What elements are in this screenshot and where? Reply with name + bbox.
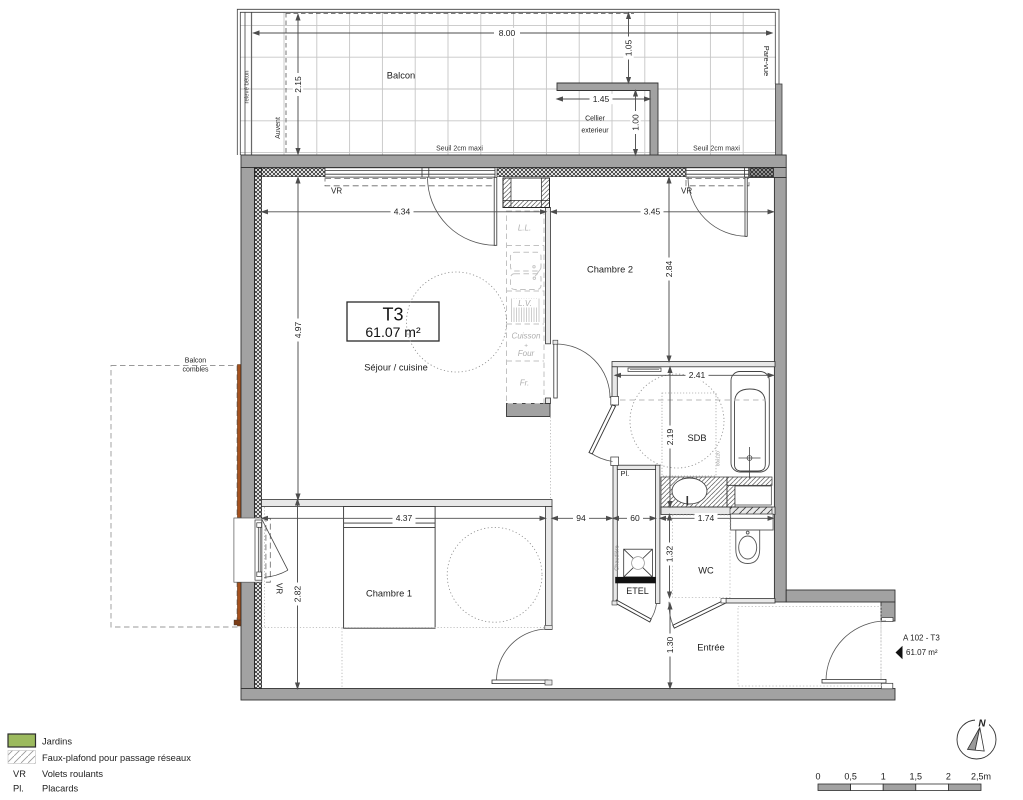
svg-text:2.41: 2.41	[689, 370, 706, 380]
svg-text:Pl.: Pl.	[621, 469, 630, 478]
svg-text:2: 2	[946, 772, 951, 782]
svg-text:Balcon: Balcon	[387, 71, 415, 81]
svg-text:Balcon: Balcon	[185, 358, 207, 365]
svg-text:0,5: 0,5	[844, 772, 857, 782]
svg-text:2.84: 2.84	[664, 260, 674, 277]
svg-text:L.V.: L.V.	[518, 299, 532, 308]
svg-text:60x120: 60x120	[716, 451, 721, 466]
svg-text:combles: combles	[182, 367, 209, 374]
svg-text:WC: WC	[698, 566, 714, 576]
svg-text:1.74: 1.74	[698, 513, 715, 523]
svg-text:Séjour / cuisine: Séjour / cuisine	[364, 363, 428, 373]
svg-text:L.L.: L.L.	[518, 224, 531, 233]
svg-text:Pl.: Pl.	[13, 784, 24, 794]
svg-text:VR: VR	[331, 187, 342, 196]
svg-text:Chaudière: Chaudière	[615, 545, 621, 570]
svg-text:Faux-plafond pour passage rése: Faux-plafond pour passage réseaux	[42, 753, 191, 763]
svg-text:ETEL: ETEL	[626, 586, 649, 596]
svg-text:3.45: 3.45	[644, 207, 661, 217]
svg-text:61.07 m²: 61.07 m²	[365, 324, 421, 340]
svg-text:T3: T3	[382, 305, 403, 325]
svg-text:Placards: Placards	[42, 784, 79, 794]
svg-text:Chambre 2: Chambre 2	[587, 265, 633, 275]
svg-text:Seuil 2cm maxi: Seuil 2cm maxi	[436, 146, 483, 153]
svg-text:Entrée: Entrée	[697, 643, 724, 653]
svg-text:4.97: 4.97	[293, 321, 303, 338]
svg-text:Fr.: Fr.	[520, 379, 529, 388]
svg-text:1.05: 1.05	[623, 39, 633, 56]
svg-text:2,5m: 2,5m	[971, 772, 991, 782]
svg-text:94: 94	[576, 513, 586, 523]
svg-text:2.15: 2.15	[293, 76, 303, 93]
svg-text:1.00: 1.00	[630, 114, 640, 131]
svg-text:60: 60	[630, 513, 640, 523]
svg-text:2.19: 2.19	[665, 428, 675, 445]
svg-text:1.45: 1.45	[593, 94, 610, 104]
svg-text:VR: VR	[681, 187, 692, 196]
svg-text:relevé béton: relevé béton	[245, 70, 251, 103]
svg-text:Cellier: Cellier	[585, 116, 606, 123]
svg-text:Volets roulants: Volets roulants	[42, 769, 103, 779]
svg-text:Chambre 1: Chambre 1	[366, 589, 412, 599]
svg-text:1.30: 1.30	[665, 636, 675, 653]
svg-text:exterieur: exterieur	[581, 128, 609, 135]
svg-text:4.37: 4.37	[396, 513, 413, 523]
svg-text:Auvent: Auvent	[275, 117, 282, 139]
svg-text:Cuisson: Cuisson	[512, 332, 541, 341]
svg-text:4.34: 4.34	[394, 207, 411, 217]
svg-text:1,5: 1,5	[910, 772, 923, 782]
svg-text:Four: Four	[518, 349, 535, 358]
svg-text:2.82: 2.82	[292, 585, 302, 602]
svg-text:0: 0	[815, 772, 820, 782]
svg-text:VR: VR	[13, 769, 26, 779]
svg-text:1: 1	[881, 772, 886, 782]
svg-text:61.07 m²: 61.07 m²	[906, 648, 938, 657]
svg-text:Jardins: Jardins	[42, 737, 72, 747]
svg-text:A 102 - T3: A 102 - T3	[903, 634, 940, 643]
svg-text:8.00: 8.00	[499, 28, 516, 38]
svg-text:1.32: 1.32	[664, 545, 674, 562]
svg-text:Seuil 2cm maxi: Seuil 2cm maxi	[693, 146, 740, 153]
svg-text:Pare-vue: Pare-vue	[762, 46, 771, 76]
svg-text:SDB: SDB	[687, 433, 706, 443]
svg-text:VR: VR	[275, 583, 284, 594]
